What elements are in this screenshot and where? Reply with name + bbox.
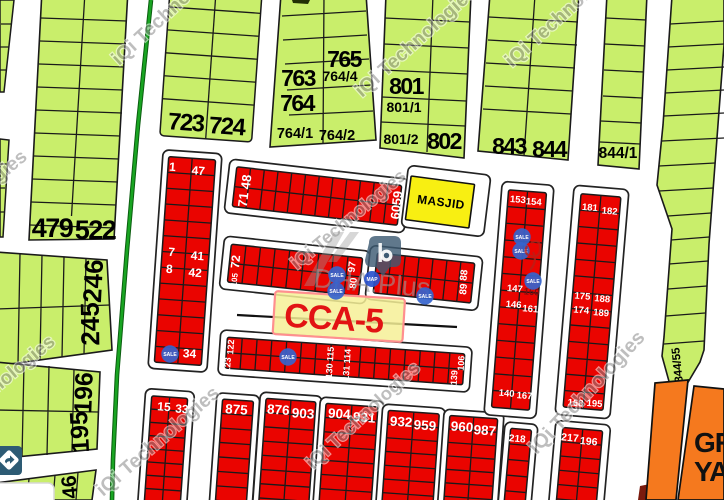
svg-text:72: 72: [228, 254, 243, 269]
svg-text:843: 843: [492, 133, 527, 159]
svg-text:801/2: 801/2: [383, 131, 418, 147]
svg-text:SALE: SALE: [418, 294, 432, 300]
svg-text:764/2: 764/2: [319, 128, 355, 144]
svg-text:903: 903: [291, 405, 315, 422]
svg-text:130: 130: [324, 363, 335, 379]
svg-text:959: 959: [413, 417, 437, 434]
svg-text:522: 522: [75, 215, 116, 245]
svg-text:844/1: 844/1: [599, 145, 638, 162]
svg-text:245: 245: [75, 302, 106, 346]
svg-text:114: 114: [342, 349, 353, 364]
svg-text:196: 196: [579, 435, 598, 448]
svg-text:SALE: SALE: [163, 352, 177, 358]
svg-text:763: 763: [281, 65, 316, 91]
svg-text:140: 140: [498, 388, 515, 400]
svg-text:723: 723: [167, 108, 205, 137]
svg-text:88: 88: [458, 269, 470, 282]
svg-text:174: 174: [573, 304, 590, 316]
svg-text:42: 42: [188, 265, 203, 280]
svg-text:89: 89: [458, 283, 470, 296]
svg-text:147: 147: [507, 283, 524, 295]
svg-text:SALE: SALE: [330, 273, 344, 279]
svg-text:764/4: 764/4: [322, 68, 357, 84]
svg-text:802: 802: [427, 128, 462, 154]
svg-text:987: 987: [473, 422, 497, 439]
svg-text:167: 167: [516, 390, 533, 402]
svg-text:SALE: SALE: [515, 235, 529, 241]
svg-text:1: 1: [169, 160, 177, 174]
svg-text:188: 188: [594, 293, 611, 305]
svg-text:195: 195: [65, 410, 95, 453]
svg-text:146: 146: [505, 299, 522, 311]
svg-text:CCA-5: CCA-5: [283, 297, 384, 341]
svg-text:SALE: SALE: [526, 279, 540, 285]
svg-text:875: 875: [225, 401, 249, 418]
svg-text:932: 932: [389, 414, 413, 431]
svg-text:844: 844: [532, 136, 568, 162]
svg-text:182: 182: [601, 206, 618, 218]
svg-text:479: 479: [32, 213, 74, 243]
svg-text:122: 122: [225, 339, 236, 355]
svg-text:106: 106: [456, 355, 467, 371]
svg-text:181: 181: [581, 202, 598, 214]
svg-text:764: 764: [280, 90, 316, 116]
svg-text:960: 960: [450, 419, 474, 436]
svg-text:764/1: 764/1: [277, 126, 313, 142]
svg-text:46: 46: [57, 474, 82, 500]
svg-text:48: 48: [238, 174, 255, 190]
svg-text:246: 246: [77, 259, 109, 304]
svg-text:8: 8: [166, 262, 174, 276]
svg-text:131: 131: [341, 365, 352, 381]
svg-text:154: 154: [525, 196, 542, 208]
svg-text:115: 115: [325, 346, 336, 361]
svg-text:801/1: 801/1: [386, 99, 421, 115]
svg-text:175: 175: [574, 291, 591, 303]
svg-text:7: 7: [168, 245, 176, 259]
svg-text:YARD: YARD: [694, 456, 724, 487]
svg-text:801: 801: [389, 73, 425, 99]
svg-text:196: 196: [69, 372, 98, 415]
svg-text:123: 123: [222, 357, 233, 373]
svg-text:GRID: GRID: [694, 427, 724, 458]
svg-text:15: 15: [157, 399, 172, 414]
svg-text:139: 139: [449, 370, 460, 386]
svg-text:SALE: SALE: [281, 355, 295, 361]
svg-text:34: 34: [182, 346, 197, 361]
svg-text:71: 71: [235, 192, 252, 208]
svg-text:47: 47: [191, 163, 206, 178]
svg-text:724: 724: [208, 112, 247, 142]
svg-text:161: 161: [522, 303, 539, 315]
svg-text:876: 876: [267, 402, 291, 419]
svg-text:SALE: SALE: [329, 289, 343, 295]
svg-text:MAP: MAP: [366, 277, 378, 283]
svg-text:153: 153: [509, 194, 526, 206]
svg-text:41: 41: [190, 248, 205, 263]
svg-text:105: 105: [229, 272, 239, 287]
svg-text:189: 189: [593, 307, 610, 319]
